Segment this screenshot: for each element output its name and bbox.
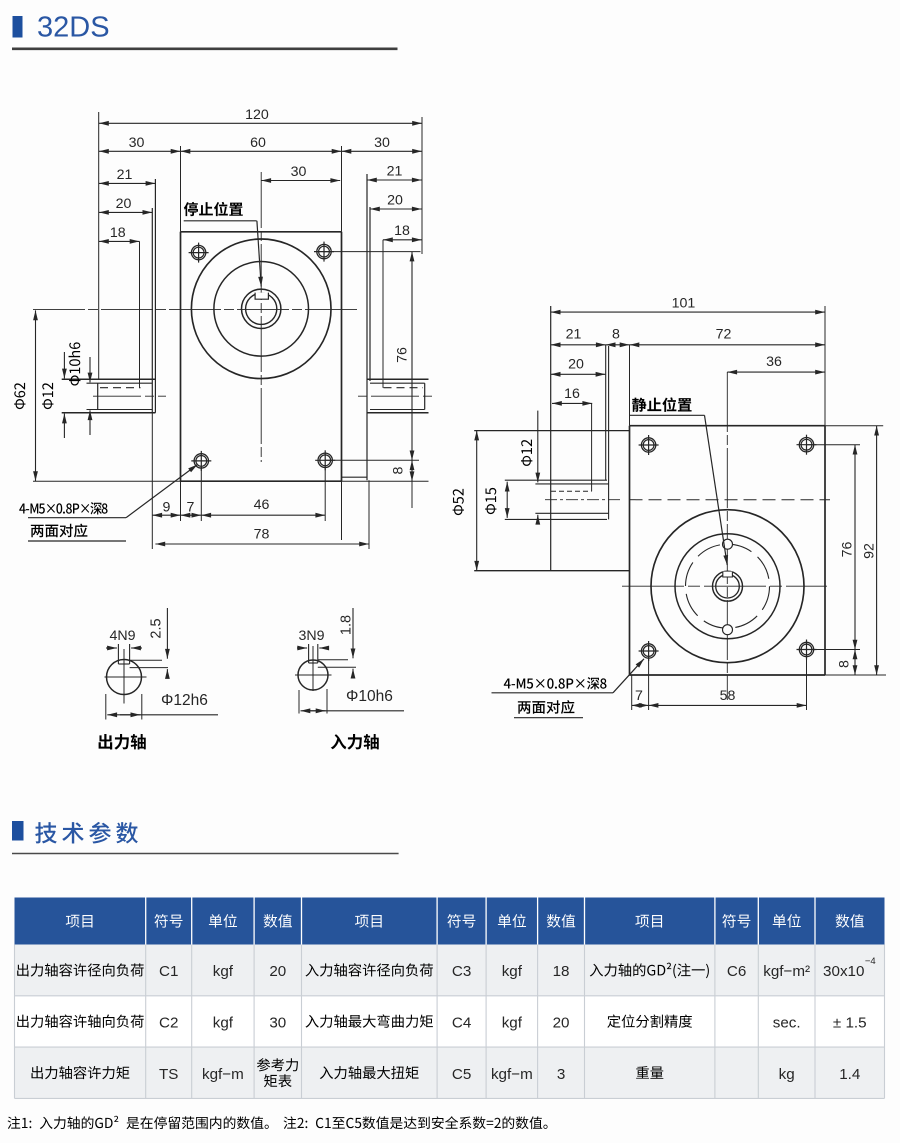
svg-text:76: 76 <box>840 542 856 558</box>
svg-text:18: 18 <box>394 223 410 239</box>
svg-text:kg: kg <box>779 1066 795 1083</box>
svg-text:20: 20 <box>387 193 403 209</box>
svg-text:TS: TS <box>159 1066 178 1083</box>
svg-text:30x10: 30x10 <box>823 963 864 980</box>
svg-text:46: 46 <box>254 497 270 513</box>
svg-text:18: 18 <box>110 225 126 241</box>
svg-text:3N9: 3N9 <box>298 628 324 644</box>
svg-text:C4: C4 <box>452 1014 471 1031</box>
svg-text:30: 30 <box>374 135 390 151</box>
svg-text:8: 8 <box>837 660 853 668</box>
svg-text:18: 18 <box>553 963 570 980</box>
svg-text:2.5: 2.5 <box>149 618 165 638</box>
svg-text:C5: C5 <box>452 1066 471 1083</box>
svg-text:30: 30 <box>129 135 145 151</box>
svg-text:−4: −4 <box>865 956 876 967</box>
svg-text:36: 36 <box>766 354 782 370</box>
svg-text:1.4: 1.4 <box>839 1066 860 1083</box>
svg-text:20: 20 <box>553 1014 570 1031</box>
svg-text:1.8: 1.8 <box>339 615 355 635</box>
svg-text:C3: C3 <box>452 963 471 980</box>
svg-text:72: 72 <box>716 327 732 343</box>
svg-text:C1: C1 <box>159 963 178 980</box>
svg-text:kgf: kgf <box>502 1014 523 1031</box>
svg-text:C2: C2 <box>159 1014 178 1031</box>
svg-text:20: 20 <box>269 963 286 980</box>
svg-text:32DS: 32DS <box>37 12 110 44</box>
svg-text:9: 9 <box>163 500 171 516</box>
svg-text:kgf−m: kgf−m <box>202 1066 244 1083</box>
svg-text:8: 8 <box>391 466 407 474</box>
svg-text:kgf: kgf <box>502 963 523 980</box>
svg-text:21: 21 <box>387 164 403 180</box>
svg-text:Φ12h6: Φ12h6 <box>161 692 208 709</box>
svg-text:Φ10h6: Φ10h6 <box>346 688 393 705</box>
svg-text:30: 30 <box>291 164 307 180</box>
svg-text:3: 3 <box>557 1066 565 1083</box>
svg-text:± 1.5: ± 1.5 <box>833 1014 867 1031</box>
svg-text:kgf: kgf <box>213 1014 234 1031</box>
svg-text:76: 76 <box>395 347 411 363</box>
svg-text:20: 20 <box>568 357 584 373</box>
svg-text:21: 21 <box>566 327 582 343</box>
svg-text:30: 30 <box>269 1014 286 1031</box>
svg-text:120: 120 <box>245 107 269 123</box>
svg-text:21: 21 <box>117 167 133 183</box>
svg-text:7: 7 <box>187 500 195 516</box>
svg-text:7: 7 <box>635 688 643 704</box>
svg-text:4N9: 4N9 <box>109 628 135 644</box>
svg-text:sec.: sec. <box>773 1014 801 1031</box>
svg-text:8: 8 <box>612 327 620 343</box>
svg-text:C6: C6 <box>727 963 746 980</box>
svg-text:16: 16 <box>564 386 580 402</box>
svg-text:20: 20 <box>116 196 132 212</box>
svg-text:92: 92 <box>862 543 878 559</box>
svg-text:kgf: kgf <box>213 963 234 980</box>
svg-text:101: 101 <box>672 296 696 312</box>
svg-text:58: 58 <box>720 688 736 704</box>
svg-text:kgf−m: kgf−m <box>491 1066 533 1083</box>
svg-text:kgf−m²: kgf−m² <box>763 963 810 980</box>
svg-text:60: 60 <box>250 135 266 151</box>
svg-text:78: 78 <box>254 527 270 543</box>
